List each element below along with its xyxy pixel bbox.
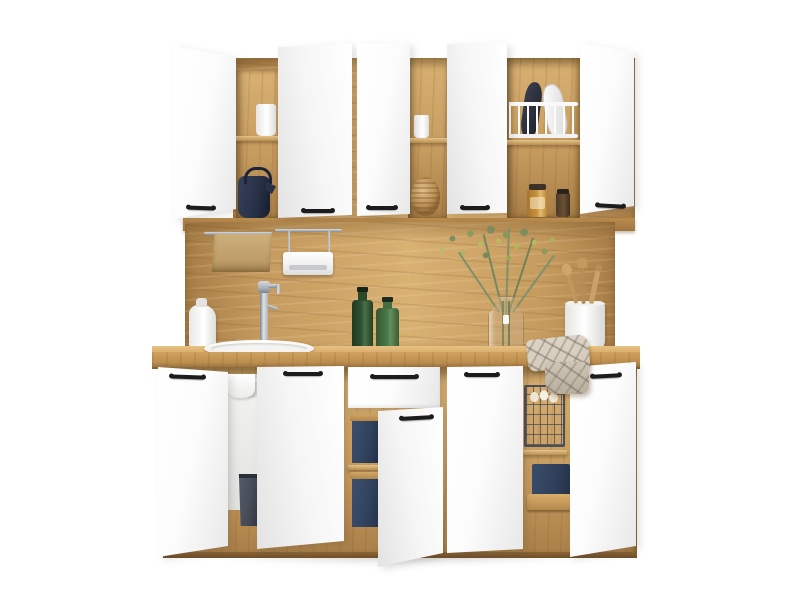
wall-interior-right (507, 58, 580, 218)
right-cabinet-interior (523, 376, 567, 554)
plaid-towel-drape (545, 362, 589, 394)
navy-crate (352, 421, 378, 463)
shelf (236, 136, 280, 141)
bottle-neck (358, 291, 367, 301)
drawer-front (348, 367, 440, 408)
kitchen-product-photo (0, 0, 800, 600)
jar-label (530, 197, 545, 209)
wall-door-3 (357, 43, 410, 216)
shelf (523, 450, 567, 455)
wire-basket (524, 385, 565, 447)
crate-lid (350, 414, 380, 421)
bottle-cap (382, 297, 393, 302)
rail-shelf-slot (289, 265, 327, 270)
shelf (507, 140, 580, 145)
faucet-column (260, 292, 268, 346)
crate-lid (350, 472, 381, 479)
navy-kettle (238, 176, 270, 218)
rack-rail-bottom (509, 134, 578, 138)
base-door-4 (447, 366, 523, 553)
kettle-handle (244, 167, 272, 184)
wall-interior-left (236, 70, 280, 218)
rail-shelf (283, 252, 333, 275)
wall-door-4 (447, 43, 507, 214)
plant-stems (432, 222, 560, 314)
wall-door-1 (173, 46, 236, 219)
base-door-3 (378, 407, 443, 567)
wall-door-5 (580, 43, 634, 214)
jar-small (556, 192, 570, 217)
green-bottle-tall (352, 300, 373, 350)
wall-door-2-handle (303, 209, 333, 213)
drawer-handle (372, 375, 417, 379)
white-pot (414, 115, 429, 138)
hanging-rail-right (275, 229, 342, 232)
faucet-lever (267, 304, 278, 310)
jar-amber (527, 188, 548, 217)
green-bottle-short (376, 308, 399, 350)
hanging-cloth (227, 374, 255, 398)
middle-cabinet-interior (348, 408, 382, 554)
shelf (408, 138, 447, 143)
wood-tray (527, 494, 571, 510)
vase-tag (503, 315, 509, 324)
shelf (348, 465, 382, 470)
wall-door-4-handle (462, 206, 488, 210)
rack-rail-top (509, 102, 578, 106)
faucet-spout-tip (276, 284, 280, 294)
white-mug (256, 104, 276, 136)
base-door-4-handle (466, 373, 498, 377)
woven-basket (411, 177, 440, 216)
base-door-1 (158, 367, 228, 557)
hanging-towel (212, 234, 273, 272)
plant-foliage (432, 222, 560, 286)
wall-door-1-handle (188, 206, 214, 211)
jar-lid (529, 184, 546, 190)
bottle-cap (357, 287, 368, 292)
base-door-2 (257, 366, 344, 549)
soap-pump (196, 298, 207, 307)
jar-small-lid (557, 189, 569, 194)
rack-bars (509, 102, 578, 138)
navy-crate (352, 479, 380, 527)
wall-door-2 (278, 43, 352, 218)
base-door-2-handle (285, 372, 321, 376)
wall-interior-middle (408, 58, 447, 218)
bottle-neck (383, 301, 392, 309)
dish-rack (509, 102, 578, 138)
wall-door-3-handle (368, 206, 396, 210)
